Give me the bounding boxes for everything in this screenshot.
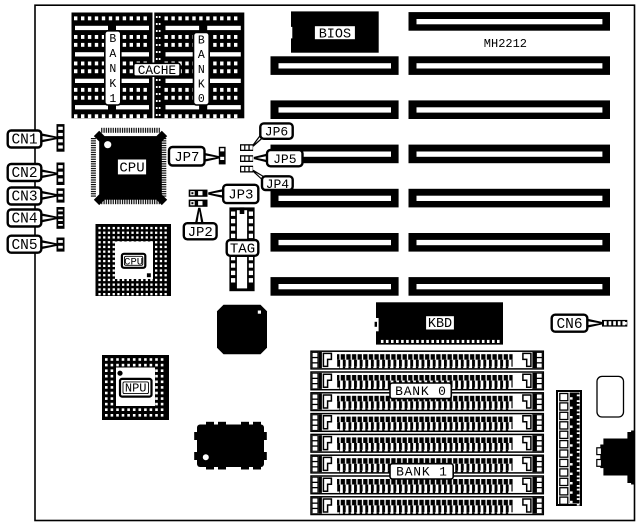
- svg-text:JP7: JP7: [174, 150, 199, 166]
- svg-text:CPU: CPU: [119, 161, 144, 177]
- svg-text:CN3: CN3: [11, 190, 37, 206]
- svg-text:B: B: [198, 35, 205, 48]
- svg-text:CN2: CN2: [11, 166, 37, 182]
- svg-text:1: 1: [109, 93, 116, 106]
- svg-text:KBD: KBD: [428, 317, 452, 332]
- svg-text:CN5: CN5: [11, 238, 37, 254]
- svg-text:JP3: JP3: [228, 188, 253, 204]
- svg-text:JP6: JP6: [265, 125, 288, 140]
- svg-text:0: 0: [198, 93, 205, 106]
- svg-text:A: A: [109, 48, 116, 61]
- svg-text:CPU: CPU: [124, 256, 143, 268]
- svg-text:JP2: JP2: [188, 225, 213, 241]
- svg-text:BANK 0: BANK 0: [395, 384, 447, 399]
- svg-text:CACHE: CACHE: [138, 63, 177, 78]
- svg-text:BIOS: BIOS: [319, 28, 351, 43]
- svg-text:N: N: [109, 63, 116, 76]
- svg-text:K: K: [109, 78, 116, 91]
- svg-text:N: N: [198, 64, 205, 77]
- svg-text:K: K: [198, 79, 205, 92]
- svg-text:A: A: [198, 49, 205, 62]
- svg-text:CN4: CN4: [11, 212, 37, 228]
- svg-text:B: B: [109, 33, 116, 46]
- svg-text:NPU: NPU: [125, 382, 147, 396]
- svg-text:JP5: JP5: [273, 152, 296, 167]
- svg-text:MH2212: MH2212: [484, 37, 527, 51]
- svg-text:BANK 1: BANK 1: [396, 465, 448, 480]
- svg-text:JP4: JP4: [266, 177, 290, 192]
- svg-text:TAG: TAG: [230, 242, 255, 258]
- svg-text:CN1: CN1: [11, 133, 37, 149]
- svg-text:CN6: CN6: [556, 317, 582, 333]
